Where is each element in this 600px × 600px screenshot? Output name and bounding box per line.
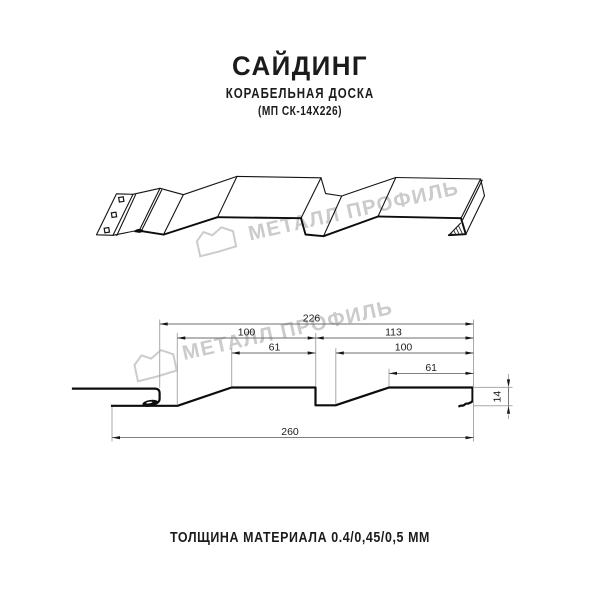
svg-text:100: 100 — [395, 342, 413, 354]
svg-text:МЕТАЛЛ ПРОФИЛЬ: МЕТАЛЛ ПРОФИЛЬ — [246, 176, 461, 245]
svg-text:100: 100 — [238, 327, 256, 339]
svg-text:61: 61 — [425, 362, 437, 374]
svg-text:МЕТАЛЛ ПРОФИЛЬ: МЕТАЛЛ ПРОФИЛЬ — [180, 296, 395, 365]
svg-text:226: 226 — [303, 313, 321, 325]
svg-text:61: 61 — [269, 342, 281, 354]
svg-text:113: 113 — [385, 327, 402, 339]
svg-text:260: 260 — [281, 426, 299, 438]
svg-text:14: 14 — [492, 391, 504, 403]
